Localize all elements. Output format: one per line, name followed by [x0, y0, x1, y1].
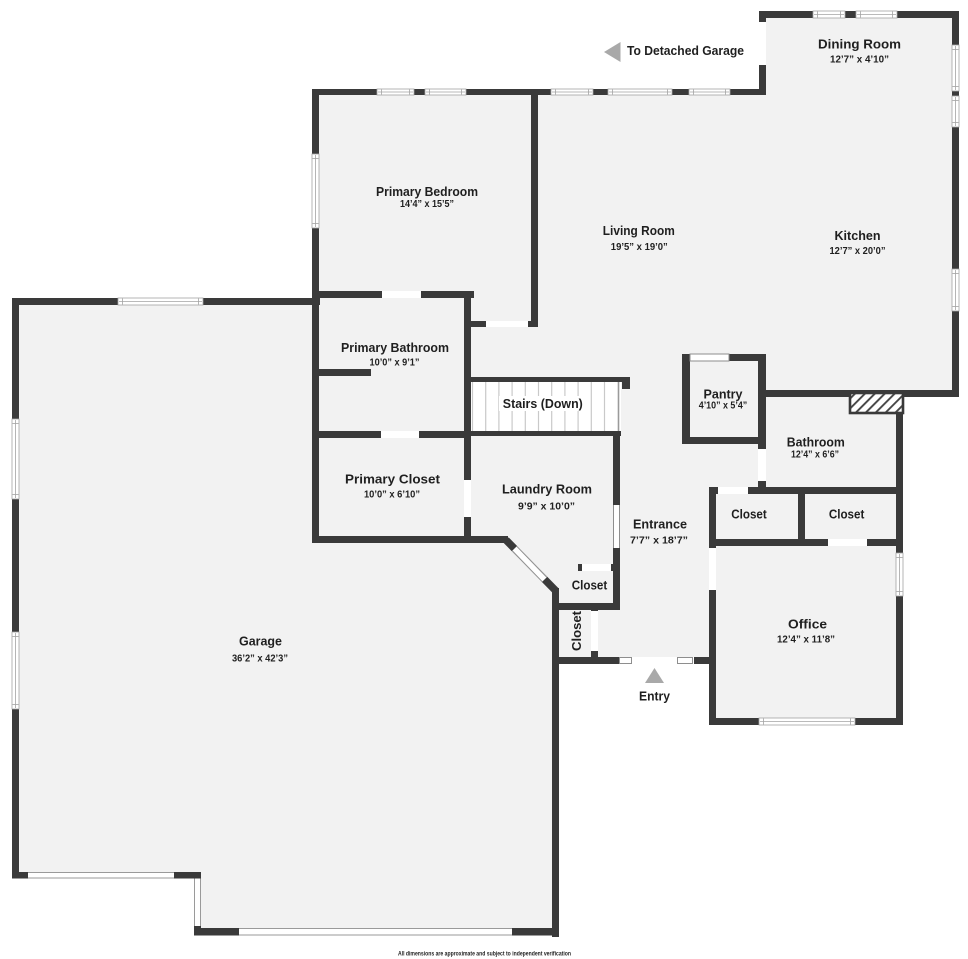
svg-text:Closet: Closet [731, 506, 767, 521]
svg-text:Kitchen: Kitchen [835, 228, 881, 243]
svg-text:36’2” x 42’3”: 36’2” x 42’3” [232, 654, 288, 665]
svg-text:12’4” x 11’8”: 12’4” x 11’8” [777, 635, 835, 646]
svg-text:Primary Bathroom: Primary Bathroom [341, 340, 449, 355]
svg-text:12’4” x 6’6”: 12’4” x 6’6” [791, 450, 839, 461]
svg-text:Bathroom: Bathroom [787, 434, 845, 449]
svg-text:Laundry Room: Laundry Room [502, 481, 592, 496]
svg-text:4’10” x 5’4”: 4’10” x 5’4” [699, 401, 748, 412]
svg-text:7’7” x 18’7”: 7’7” x 18’7” [630, 536, 688, 547]
svg-text:10’0” x 9’1”: 10’0” x 9’1” [370, 358, 420, 369]
svg-text:Dining Room: Dining Room [818, 37, 901, 52]
svg-text:All dimensions are approximate: All dimensions are approximate and subje… [398, 951, 571, 958]
svg-text:Pantry: Pantry [704, 387, 744, 402]
svg-text:19’5” x 19’0”: 19’5” x 19’0” [611, 242, 668, 253]
svg-text:Closet: Closet [569, 610, 584, 651]
svg-text:12’7” x 4’10”: 12’7” x 4’10” [830, 55, 889, 66]
svg-text:Closet: Closet [829, 506, 865, 521]
svg-text:To Detached Garage: To Detached Garage [627, 43, 744, 58]
svg-text:14’4” x 15’5”: 14’4” x 15’5” [400, 199, 454, 210]
svg-text:10’0” x 6’10”: 10’0” x 6’10” [364, 490, 420, 501]
svg-text:Closet: Closet [572, 577, 608, 592]
svg-text:Primary Bedroom: Primary Bedroom [376, 184, 478, 199]
svg-text:Entrance: Entrance [633, 516, 687, 531]
svg-text:Entry: Entry [639, 688, 671, 703]
svg-text:9’9” x 10’0”: 9’9” x 10’0” [518, 502, 575, 513]
svg-text:Office: Office [788, 616, 827, 631]
svg-text:Living Room: Living Room [603, 223, 675, 238]
svg-text:Garage: Garage [239, 633, 282, 648]
svg-text:Stairs (Down): Stairs (Down) [503, 396, 583, 411]
svg-text:12’7” x 20’0”: 12’7” x 20’0” [830, 246, 886, 257]
svg-text:Primary Closet: Primary Closet [345, 471, 441, 486]
